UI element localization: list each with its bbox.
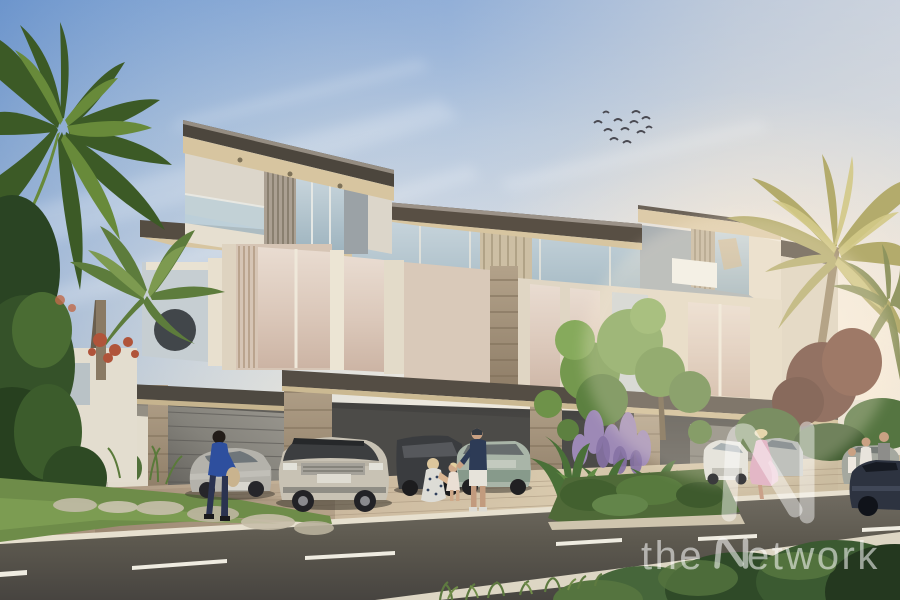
svg-text:etwork: etwork xyxy=(747,534,880,578)
svg-text:the: the xyxy=(641,534,704,578)
